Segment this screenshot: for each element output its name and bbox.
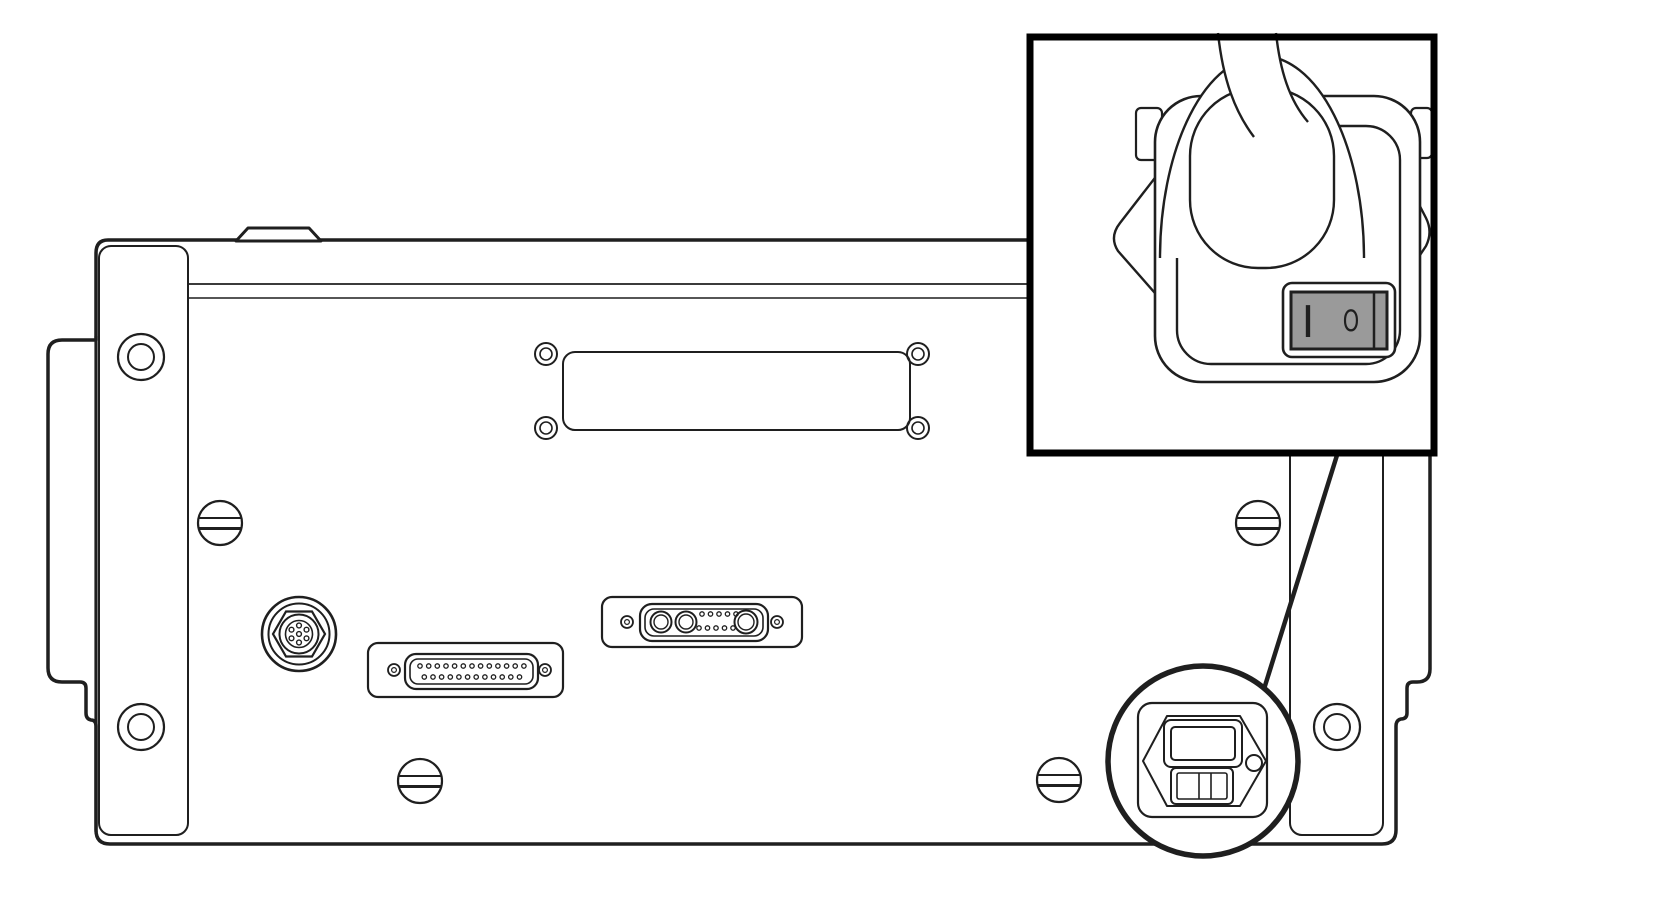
rear-panel-diagram: I O xyxy=(0,0,1665,911)
switch-on-label: I xyxy=(1302,297,1315,348)
switch-off-label: O xyxy=(1343,305,1359,338)
top-tab xyxy=(236,228,321,241)
callout-inset-box: I O xyxy=(1030,33,1434,453)
rocker-switch: I O xyxy=(1283,283,1395,357)
